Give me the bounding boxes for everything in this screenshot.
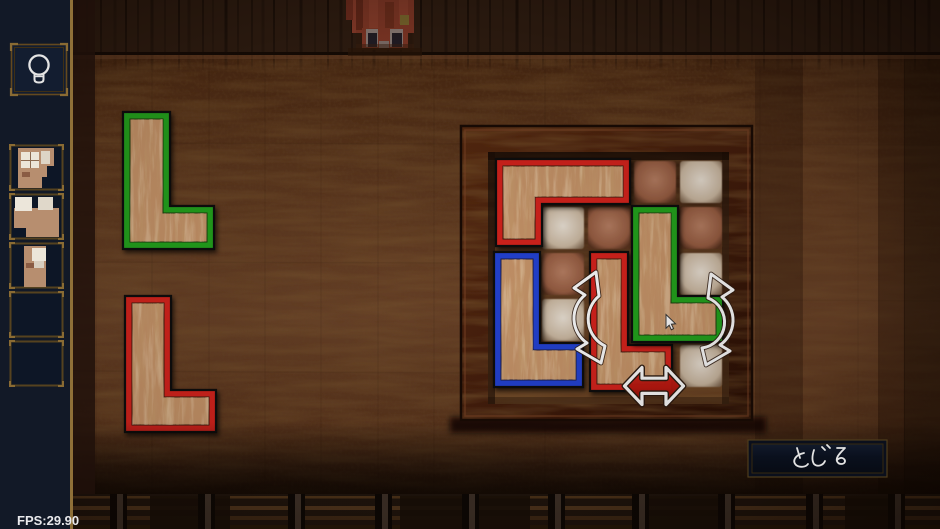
svg-text:FPS:29.90: FPS:29.90 — [17, 513, 79, 528]
